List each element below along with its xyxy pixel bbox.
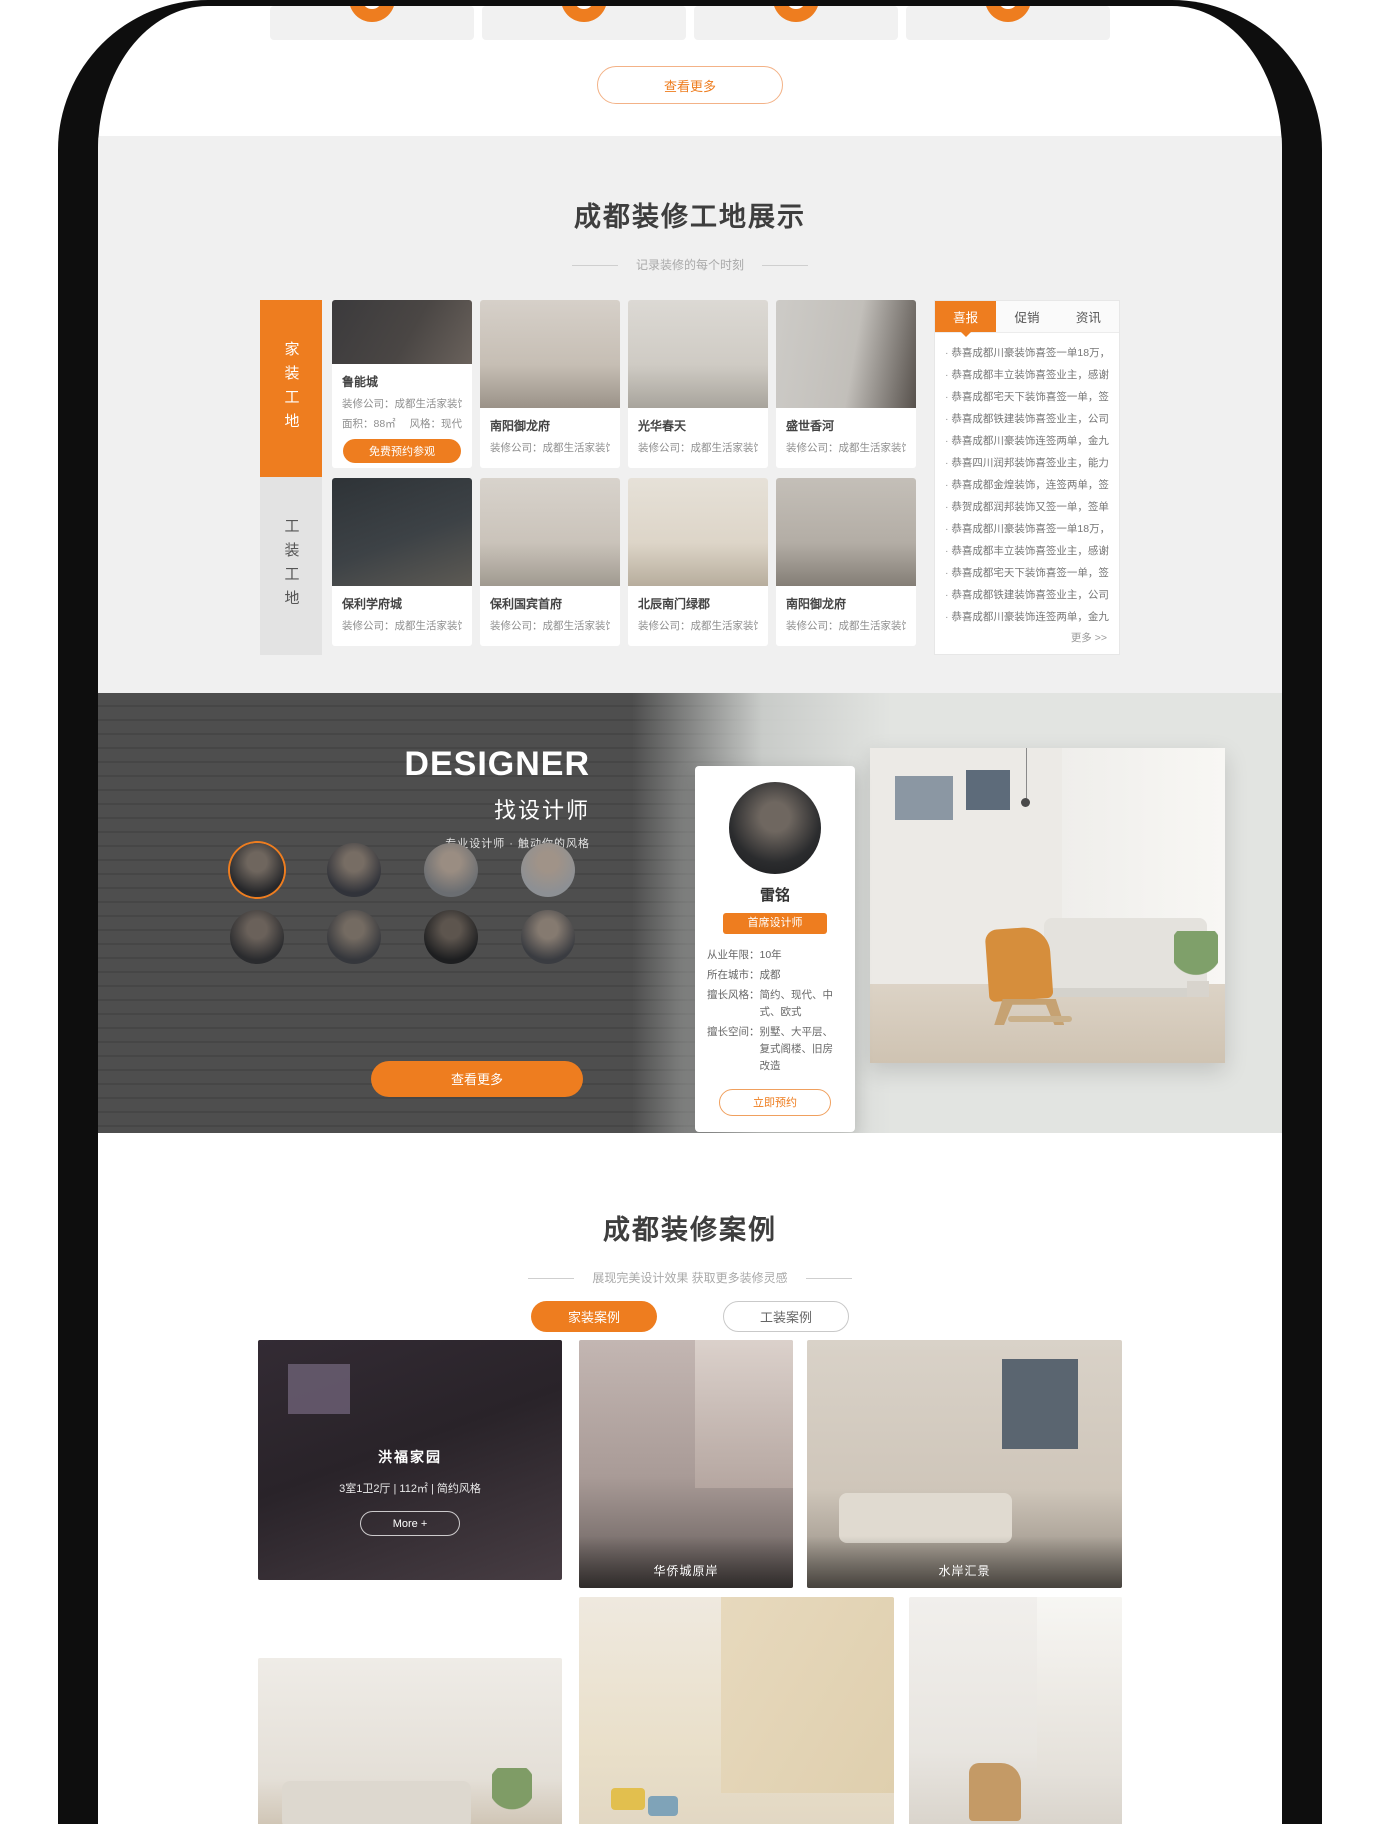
photo-window bbox=[1037, 1597, 1122, 1777]
case-name: 洪福家园 bbox=[378, 1447, 442, 1467]
photo-wall-mural bbox=[721, 1597, 894, 1794]
worksite-photo bbox=[480, 478, 620, 586]
worksite-card[interactable]: 光华春天 装修公司：成都生活家装饰 bbox=[628, 300, 768, 468]
case-name: 华侨城原岸 bbox=[579, 1536, 793, 1588]
case-card[interactable]: 水岸汇景 bbox=[807, 1340, 1122, 1588]
case-name: 水岸汇景 bbox=[807, 1536, 1122, 1588]
worksite-photo bbox=[332, 300, 472, 364]
photo-pillow bbox=[648, 1796, 678, 1816]
worksite-card[interactable]: 南阳御龙府 装修公司：成都生活家装饰 bbox=[776, 478, 916, 646]
designer-avatar[interactable] bbox=[327, 910, 381, 964]
case-featured-content: 洪福家园 3室1卫2厅 | 112㎡ | 简约风格 More + bbox=[258, 1340, 562, 1580]
tab-good-news[interactable]: 喜报 bbox=[935, 301, 996, 332]
photo-window bbox=[695, 1340, 793, 1489]
cases-section: 成都装修案例 展现完美设计效果 获取更多装修灵感 家装案例 工装案例 洪福家园 … bbox=[98, 1133, 1282, 1824]
feature-icon bbox=[561, 0, 607, 22]
designer-detail-row: 擅长空间： 别墅、大平层、复式阁楼、旧房改造 bbox=[707, 1024, 843, 1075]
top-strip: 查看更多 bbox=[98, 6, 1282, 104]
tab-home-cases[interactable]: 家装案例 bbox=[531, 1301, 657, 1332]
news-item[interactable]: 恭喜成都丰立装饰喜签业主，感谢客户的 bbox=[945, 540, 1109, 562]
divider-line bbox=[762, 265, 808, 266]
feature-icon bbox=[773, 0, 819, 22]
worksite-card[interactable]: 盛世香河 装修公司：成都生活家装饰 bbox=[776, 300, 916, 468]
divider-line bbox=[806, 1278, 852, 1279]
feature-card[interactable] bbox=[270, 6, 474, 40]
news-panel: 喜报 促销 资讯 恭喜成都川豪装饰喜签一单18万，再加 恭喜成都丰立装饰喜签业主… bbox=[934, 300, 1120, 655]
designer-detail-row: 所在城市： 成都 bbox=[707, 967, 843, 984]
designer-showcase-photo bbox=[870, 748, 1225, 1063]
news-item[interactable]: 恭喜成都川豪装饰喜签一单18万，再加 bbox=[945, 342, 1109, 364]
photo-orange-chair bbox=[985, 926, 1054, 1002]
news-list: 恭喜成都川豪装饰喜签一单18万，再加 恭喜成都丰立装饰喜签业主，感谢客户的 恭喜… bbox=[935, 333, 1119, 628]
tab-commercial-worksite[interactable]: 工装工地 bbox=[260, 477, 322, 655]
designer-avatar[interactable] bbox=[327, 843, 381, 897]
case-tabs: 家装案例 工装案例 bbox=[98, 1301, 1282, 1332]
photo-wall-art bbox=[895, 776, 953, 820]
photo-pillow bbox=[611, 1788, 645, 1810]
news-more-link[interactable]: 更多 >> bbox=[935, 628, 1119, 654]
book-now-button[interactable]: 立即预约 bbox=[719, 1089, 831, 1116]
divider-line bbox=[572, 265, 618, 266]
designer-avatar[interactable] bbox=[521, 843, 575, 897]
worksite-photo bbox=[480, 300, 620, 408]
case-card[interactable]: 金沙云邸 bbox=[909, 1597, 1122, 1824]
device-frame: 查看更多 成都装修工地展示 记录装修的每个时刻 家装工地 工装工地 鲁能城 装修… bbox=[58, 0, 1322, 1824]
worksite-panel: 家装工地 工装工地 鲁能城 装修公司：成都生活家装饰 面积：88㎡ 风格：现代 … bbox=[260, 300, 1120, 655]
cases-subtitle: 展现完美设计效果 获取更多装修灵感 bbox=[592, 1270, 787, 1287]
feature-card[interactable] bbox=[906, 6, 1110, 40]
photo-coffee-table bbox=[1008, 1016, 1072, 1022]
photo-pendant-lamp bbox=[1021, 798, 1030, 807]
view-more-button-designers[interactable]: 查看更多 bbox=[371, 1061, 583, 1097]
feature-icon bbox=[985, 0, 1031, 22]
page: 查看更多 成都装修工地展示 记录装修的每个时刻 家装工地 工装工地 鲁能城 装修… bbox=[98, 6, 1282, 1824]
worksite-photo bbox=[776, 478, 916, 586]
cases-subtitle-row: 展现完美设计效果 获取更多装修灵感 bbox=[98, 1270, 1282, 1287]
feature-card-row bbox=[270, 6, 1110, 40]
case-card[interactable]: 华侨城原岸 bbox=[579, 1340, 793, 1588]
worksite-card-area: 面积：88㎡ bbox=[342, 416, 396, 431]
case-spec: 3室1卫2厅 | 112㎡ | 简约风格 bbox=[339, 1480, 481, 1496]
designer-detail-row: 从业年限： 10年 bbox=[707, 947, 843, 964]
news-item[interactable]: 恭喜成都宅天下装饰喜签一单，签单能力 bbox=[945, 386, 1109, 408]
divider-line bbox=[528, 1278, 574, 1279]
worksite-photo bbox=[628, 300, 768, 408]
designer-detail-row: 擅长风格： 简约、现代、中式、欧式 bbox=[707, 987, 843, 1021]
worksite-title: 成都装修工地展示 bbox=[98, 200, 1282, 234]
tab-information[interactable]: 资讯 bbox=[1058, 301, 1119, 332]
news-item[interactable]: 恭喜四川润邦装饰喜签业主，能力有保障 bbox=[945, 452, 1109, 474]
designer-title-cn: 找设计师 bbox=[248, 793, 590, 825]
worksite-card[interactable]: 南阳御龙府 装修公司：成都生活家装饰 bbox=[480, 300, 620, 468]
photo-plant bbox=[492, 1768, 532, 1820]
case-card-featured[interactable]: 洪福家园 3室1卫2厅 | 112㎡ | 简约风格 More + bbox=[258, 1340, 562, 1580]
designer-avatar[interactable] bbox=[521, 910, 575, 964]
designer-avatar[interactable] bbox=[424, 910, 478, 964]
photo-plant bbox=[1174, 931, 1218, 987]
designer-section: DESIGNER 找设计师 专业设计师 · 触动你的风格 查看更多 雷铭 首席设… bbox=[98, 693, 1282, 1133]
worksite-card-company: 装修公司：成都生活家装饰 bbox=[342, 396, 462, 411]
cases-title: 成都装修案例 bbox=[98, 1213, 1282, 1247]
designer-name: 雷铭 bbox=[707, 884, 843, 905]
worksite-subtitle: 记录装修的每个时刻 bbox=[636, 257, 744, 274]
news-item[interactable]: 恭喜成都铁建装饰喜签业主，公司实力 bbox=[945, 584, 1109, 606]
designer-badge: 首席设计师 bbox=[723, 913, 827, 934]
worksite-subtitle-row: 记录装修的每个时刻 bbox=[98, 257, 1282, 274]
news-item[interactable]: 恭贺成都润邦装饰又签一单，签单能力强 bbox=[945, 496, 1109, 518]
worksite-card[interactable]: 保利国宾首府 装修公司：成都生活家装饰 bbox=[480, 478, 620, 646]
case-more-button[interactable]: More + bbox=[360, 1511, 460, 1536]
designer-avatar[interactable] bbox=[230, 910, 284, 964]
news-item[interactable]: 恭喜成都铁建装饰喜签业主，公司实力 bbox=[945, 408, 1109, 430]
designer-avatar-grid bbox=[220, 843, 584, 964]
tab-commercial-cases[interactable]: 工装案例 bbox=[723, 1301, 849, 1332]
worksite-card-grid: 鲁能城 装修公司：成都生活家装饰 面积：88㎡ 风格：现代 免费预约参观 南阳御… bbox=[332, 300, 916, 655]
feature-card[interactable] bbox=[694, 6, 898, 40]
worksite-card[interactable]: 保利学府城 装修公司：成都生活家装饰 bbox=[332, 478, 472, 646]
designer-portrait bbox=[729, 782, 821, 874]
tab-home-worksite[interactable]: 家装工地 bbox=[260, 300, 322, 478]
news-tabs: 喜报 促销 资讯 bbox=[935, 301, 1119, 333]
view-more-button-top[interactable]: 查看更多 bbox=[597, 66, 783, 104]
worksite-card-featured[interactable]: 鲁能城 装修公司：成都生活家装饰 面积：88㎡ 风格：现代 免费预约参观 bbox=[332, 300, 472, 468]
news-item[interactable]: 恭喜成都宅天下装饰喜签一单，签单能力 bbox=[945, 562, 1109, 584]
news-item[interactable]: 恭喜成都川豪装饰连签两单，金九银十 bbox=[945, 606, 1109, 628]
designer-avatar[interactable] bbox=[230, 843, 284, 897]
feature-card[interactable] bbox=[482, 6, 686, 40]
reserve-visit-button[interactable]: 免费预约参观 bbox=[343, 439, 461, 463]
photo-wall-art bbox=[966, 770, 1010, 810]
worksite-card-name: 鲁能城 bbox=[342, 373, 462, 390]
worksite-photo bbox=[628, 478, 768, 586]
designer-heading: DESIGNER 找设计师 专业设计师 · 触动你的风格 bbox=[248, 745, 590, 851]
worksite-photo bbox=[776, 300, 916, 408]
photo-wood-chair bbox=[969, 1763, 1021, 1821]
news-item[interactable]: 恭喜成都丰立装饰喜签业主，感谢客户的 bbox=[945, 364, 1109, 386]
news-item[interactable]: 恭喜成都川豪装饰连签两单，金九银十 bbox=[945, 430, 1109, 452]
designer-avatar[interactable] bbox=[424, 843, 478, 897]
photo-sofa bbox=[282, 1781, 470, 1824]
worksite-card[interactable]: 北辰南门绿郡 装修公司：成都生活家装饰 bbox=[628, 478, 768, 646]
worksite-photo bbox=[332, 478, 472, 586]
worksite-card-spec: 面积：88㎡ 风格：现代 bbox=[342, 416, 462, 431]
designer-profile-card[interactable]: 雷铭 首席设计师 从业年限： 10年 所在城市： 成都 擅长风格： 简约、现代、… bbox=[695, 766, 855, 1132]
case-card[interactable]: 江南花山郡 bbox=[258, 1658, 562, 1824]
tab-promotions[interactable]: 促销 bbox=[996, 301, 1057, 332]
news-item[interactable]: 恭喜成都川豪装饰喜签一单18万，再加 bbox=[945, 518, 1109, 540]
designer-details: 从业年限： 10年 所在城市： 成都 擅长风格： 简约、现代、中式、欧式 擅长空… bbox=[707, 947, 843, 1075]
worksite-section: 成都装修工地展示 记录装修的每个时刻 家装工地 工装工地 鲁能城 装修公司：成都… bbox=[98, 136, 1282, 693]
worksite-side-tabs: 家装工地 工装工地 bbox=[260, 300, 322, 655]
photo-plant-pot bbox=[1187, 981, 1209, 997]
feature-icon bbox=[349, 0, 395, 22]
worksite-card-style: 风格：现代 bbox=[410, 416, 463, 431]
designer-title-en: DESIGNER bbox=[248, 745, 590, 784]
case-card[interactable]: 远大林语城 bbox=[579, 1597, 894, 1824]
photo-wall-art bbox=[1002, 1359, 1078, 1448]
case-grid: 洪福家园 3室1卫2厅 | 112㎡ | 简约风格 More + 华侨城原岸 水… bbox=[258, 1340, 1122, 1824]
photo-pendant-lamp bbox=[1026, 748, 1027, 800]
news-item[interactable]: 恭喜成都金煌装饰，连签两单，签单能力 bbox=[945, 474, 1109, 496]
